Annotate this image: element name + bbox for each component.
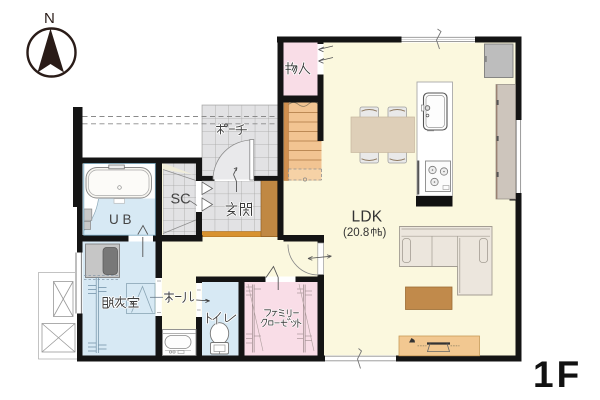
svg-text:SC: SC <box>171 192 191 208</box>
svg-text:U B: U B <box>109 212 132 227</box>
svg-text:(20.8: (20.8 <box>343 227 369 239</box>
svg-text:N: N <box>44 10 55 27</box>
svg-text:LDK: LDK <box>352 209 383 226</box>
svg-text:1F: 1F <box>533 354 582 395</box>
svg-text:): ) <box>383 227 387 239</box>
